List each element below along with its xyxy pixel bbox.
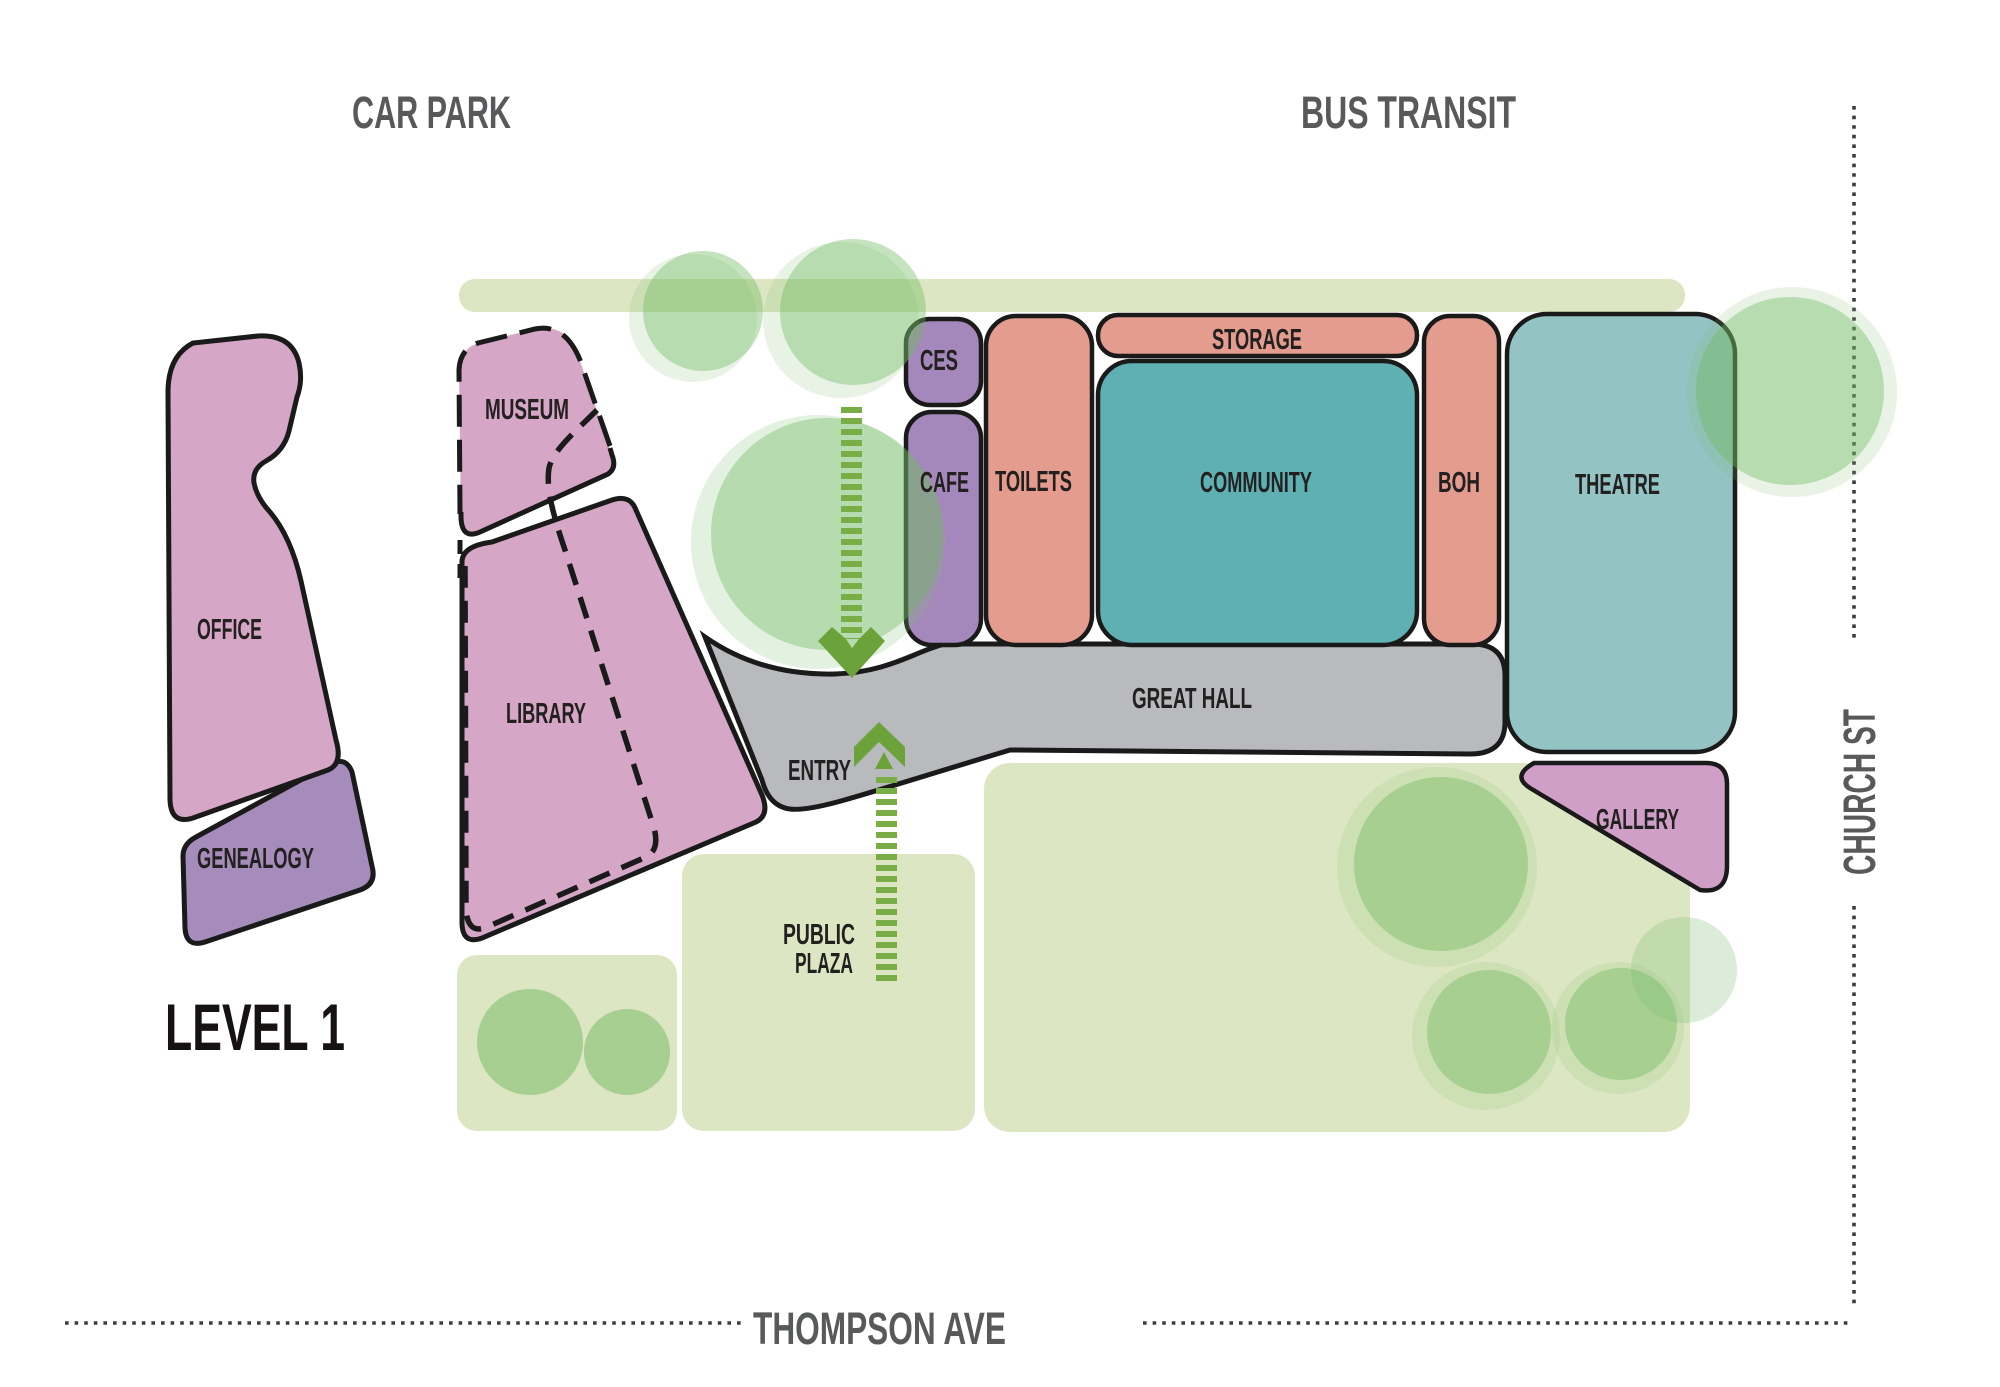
svg-text:PUBLIC: PUBLIC xyxy=(783,919,855,951)
svg-text:CAR PARK: CAR PARK xyxy=(352,87,511,138)
svg-text:GENEALOGY: GENEALOGY xyxy=(197,843,314,875)
svg-text:COMMUNITY: COMMUNITY xyxy=(1200,467,1312,499)
svg-text:OFFICE: OFFICE xyxy=(197,614,262,646)
svg-text:THEATRE: THEATRE xyxy=(1575,469,1660,501)
svg-text:STORAGE: STORAGE xyxy=(1212,324,1302,356)
svg-text:MUSEUM: MUSEUM xyxy=(485,394,569,426)
svg-text:CHURCH ST: CHURCH ST xyxy=(1834,709,1885,875)
svg-text:CAFE: CAFE xyxy=(920,467,969,499)
svg-text:LIBRARY: LIBRARY xyxy=(506,698,586,730)
svg-text:TOILETS: TOILETS xyxy=(995,466,1072,498)
svg-text:PLAZA: PLAZA xyxy=(795,948,853,980)
svg-text:ENTRY: ENTRY xyxy=(788,755,851,787)
svg-text:BOH: BOH xyxy=(1438,467,1480,499)
svg-text:LEVEL 1: LEVEL 1 xyxy=(165,990,345,1064)
svg-text:GALLERY: GALLERY xyxy=(1596,804,1679,836)
svg-text:CES: CES xyxy=(920,345,958,377)
svg-text:GREAT HALL: GREAT HALL xyxy=(1132,683,1252,715)
svg-text:BUS TRANSIT: BUS TRANSIT xyxy=(1301,87,1516,138)
svg-text:THOMPSON AVE: THOMPSON AVE xyxy=(753,1303,1006,1354)
